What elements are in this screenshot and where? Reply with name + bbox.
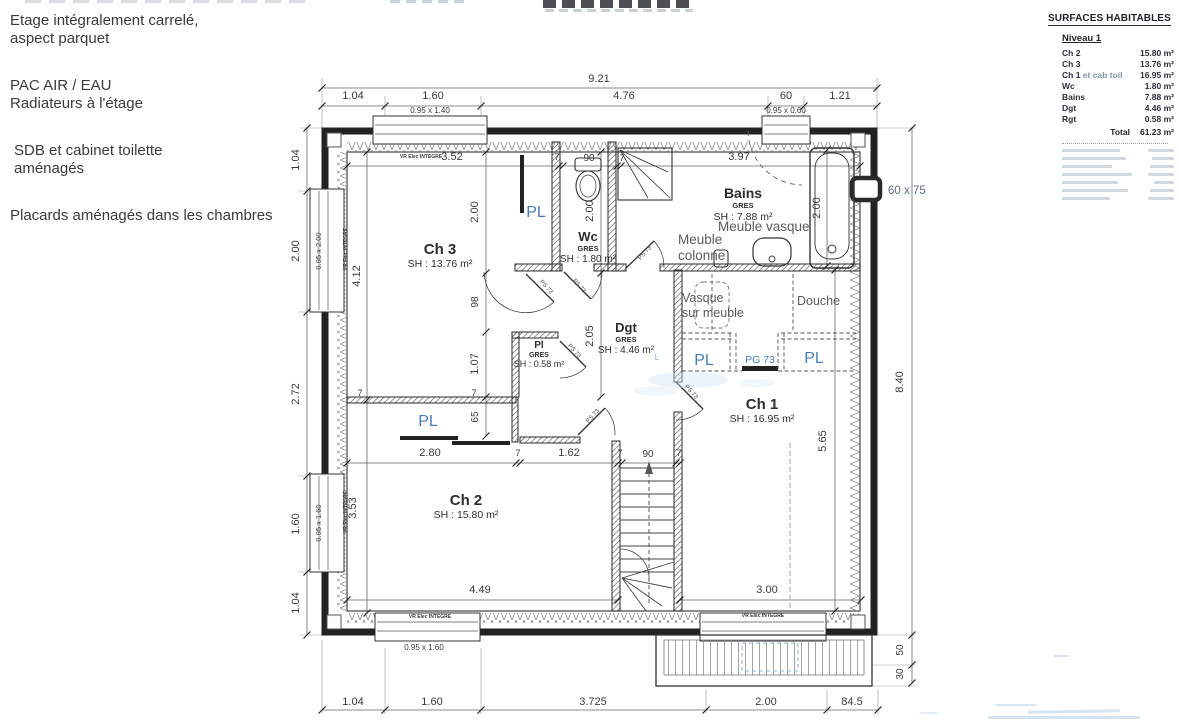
faded-row [1062, 189, 1174, 192]
scan-smudge [1053, 655, 1069, 657]
surface-row: Bains7.88 m² [1062, 92, 1174, 103]
surface-row-label: Ch 1 et cab toil [1062, 70, 1122, 81]
plan-label: 7 [676, 448, 681, 458]
plan-label: 9.21 [588, 73, 609, 85]
plan-label: Dgt [615, 320, 637, 335]
plan-label: 1.60 [421, 696, 442, 708]
plan-label: 3.97 [728, 151, 749, 163]
plan-label: Wc [578, 229, 598, 244]
surface-row: Ch 1 et cab toil16.95 m² [1062, 70, 1174, 81]
plan-label: 84.5 [841, 696, 862, 708]
surface-row-label: Dgt [1062, 103, 1076, 114]
plan-label: VR Elec INTEGRE [409, 614, 452, 620]
plan-label: 50 [895, 644, 906, 656]
corner-posts [327, 133, 865, 629]
plan-label: 2.00 [755, 696, 776, 708]
plan-label: sur meuble [682, 306, 744, 320]
surfaces-table: SURFACES HABITABLES Niveau 1 Ch 215.80 m… [1048, 8, 1174, 200]
shower-icon [618, 148, 672, 200]
plan-label: 4.49 [469, 584, 490, 596]
plan-label: 2.00 [811, 197, 823, 218]
total-value: 61.23 m² [1140, 126, 1174, 138]
washbasin-icon [753, 238, 791, 266]
plan-label: 65 [470, 411, 481, 423]
surface-row-label: Ch 3 [1062, 59, 1080, 70]
surface-row-value: 15.80 m² [1140, 48, 1174, 59]
interior-partitions [347, 142, 860, 611]
plan-label: 60 x 75 [888, 185, 926, 197]
plan-label: 7 [515, 448, 520, 458]
surface-row-label: Ch 2 [1062, 48, 1080, 59]
scan-smudge [920, 712, 938, 714]
plan-label: 7 [554, 152, 559, 162]
small-window-60x75 [852, 178, 880, 200]
plan-label: 2.00 [469, 201, 481, 222]
faded-row [1062, 173, 1174, 176]
plan-label: PS 73 [638, 245, 654, 262]
faded-row [1062, 197, 1174, 200]
plan-label: 1.60 [290, 513, 302, 534]
plan-label: L [655, 353, 660, 362]
plan-label: 1.04 [342, 90, 363, 102]
scan-smudges [633, 372, 775, 396]
plan-label: 1.07 [469, 353, 481, 374]
plan-label: SH : 13.76 m² [408, 258, 473, 270]
plan-label: 98 [470, 296, 481, 308]
plan-label: GRES [615, 335, 636, 344]
surface-row: Ch 313.76 m² [1062, 59, 1174, 70]
plan-label: 2.00 [290, 240, 302, 261]
surface-row-label: Bains [1062, 92, 1085, 103]
plan-label: PS 73 [566, 343, 582, 360]
plan-label: Pl [534, 340, 544, 351]
plan-label: PL [526, 204, 546, 221]
plan-label: 7 [619, 153, 624, 163]
plan-label: 0.95 x 2.00 [314, 232, 323, 269]
plan-label: GRES [732, 201, 753, 210]
plan-label: SH : 1.80 m² [560, 254, 617, 265]
insulation-hatch [337, 142, 860, 623]
surfaces-table-level: Niveau 1 [1062, 33, 1174, 44]
plan-label: GRES [529, 352, 549, 359]
scan-smudge [995, 704, 1037, 706]
plan-label: 5.65 [817, 430, 829, 451]
faded-row [1062, 149, 1174, 152]
plan-label: VR Elec INTEGRE [742, 613, 785, 619]
surface-row-value: 16.95 m² [1140, 70, 1174, 81]
faded-divider [1062, 143, 1168, 144]
plan-label: 1.04 [342, 696, 363, 708]
scan-smudge [988, 716, 1140, 719]
faded-row [1062, 181, 1174, 184]
surface-row-value: 7.88 m² [1145, 92, 1174, 103]
surface-row-value: 4.46 m² [1145, 103, 1174, 114]
plan-label: VR Elec INTEGRE [400, 154, 443, 160]
plan-label: 1.60 [422, 90, 443, 102]
plan-label: GRES [577, 244, 598, 253]
plan-label: 7 [617, 448, 622, 458]
plan-label: PL [418, 413, 438, 430]
plan-label: Vasque [682, 291, 724, 305]
plan-label: 1.04 [290, 149, 302, 170]
plan-label: SH : 15.80 m² [434, 509, 499, 521]
plan-label: 2.72 [290, 383, 302, 404]
plan-label: 1.21 [829, 90, 850, 102]
plan-label: 7 [357, 388, 362, 398]
plan-label: Ch 2 [450, 492, 483, 509]
surface-row: Rgt0.58 m² [1062, 114, 1174, 125]
plan-label: 7 [471, 388, 476, 398]
plan-label: Ch 3 [424, 241, 457, 258]
plan-label: 3.52 [441, 151, 462, 163]
surface-row-label: Rgt [1062, 114, 1076, 125]
plan-label: VR Elec INTEGRE [343, 227, 349, 270]
floor-plan-drawing: 9.211.041.604.76601.211.042.002.721.601.… [0, 0, 1179, 724]
plan-label: 0.95 x 1.60 [314, 504, 323, 541]
plan-label: 60 [780, 90, 792, 102]
plan-label: PL [804, 350, 824, 367]
plan-label: SH : 4.46 m² [598, 345, 655, 356]
plan-label: 90 [642, 449, 654, 460]
plan-label: PG 73 [745, 354, 775, 366]
surface-row-value: 13.76 m² [1140, 59, 1174, 70]
total-label: Total [1110, 126, 1130, 138]
plan-label: 1.04 [290, 592, 302, 613]
plan-label: 2.80 [419, 447, 440, 459]
outer-wall [325, 131, 874, 632]
surface-row-value: 0.58 m² [1145, 114, 1174, 125]
surface-row-value: 1.80 m² [1145, 81, 1174, 92]
plan-label: Douche [797, 294, 840, 308]
staircase [620, 461, 674, 611]
plan-label: 4.12 [351, 265, 363, 286]
plan-label: 4.76 [613, 90, 634, 102]
plan-label: 0.95 x 1.60 [404, 643, 444, 652]
surface-row: Dgt4.46 m² [1062, 103, 1174, 114]
plan-label: Ch 1 [746, 396, 779, 413]
plan-label: 2.05 [584, 325, 596, 346]
document: Etage intégralement carrelé, aspect parq… [0, 0, 1179, 724]
surfaces-table-title: SURFACES HABITABLES [1048, 13, 1171, 26]
plan-label: VR Elec INTEGRE [343, 490, 349, 533]
plan-label: SH : 16.95 m² [730, 413, 795, 425]
plan-label: PL [694, 352, 714, 369]
plan-label: Bains [724, 185, 762, 201]
dashed-layout-lines [682, 274, 856, 609]
plan-label: PS 73 [586, 408, 602, 425]
plan-label: 90 [583, 153, 595, 164]
faded-row [1062, 165, 1174, 168]
plan-label: 0.95 x 1.40 [410, 106, 450, 115]
faded-table-rows [1048, 149, 1174, 200]
surfaces-table-total: Total 61.23 m² [1062, 126, 1174, 138]
plan-label: 1.62 [558, 447, 579, 459]
plan-label: colonne [678, 248, 725, 263]
surface-row-label: Wc [1062, 81, 1075, 92]
plan-label: Meuble [678, 232, 722, 247]
plan-label: Meuble vasque [718, 219, 810, 234]
plan-label: 8.40 [894, 371, 906, 392]
plan-label: SH : 0.58 m² [514, 359, 565, 369]
plan-label: 2.00 [584, 200, 596, 221]
plan-label: 30 [895, 668, 906, 680]
plan-label: 3.725 [579, 696, 607, 708]
plan-label: 0.95 x 0.60 [766, 106, 806, 115]
surfaces-table-rows: Ch 215.80 m²Ch 313.76 m²Ch 1 et cab toil… [1048, 48, 1174, 125]
surface-row: Wc1.80 m² [1062, 81, 1174, 92]
balcony [656, 635, 872, 686]
plan-label: 3.00 [756, 584, 777, 596]
faded-row [1062, 157, 1174, 160]
surface-row: Ch 215.80 m² [1062, 48, 1174, 59]
